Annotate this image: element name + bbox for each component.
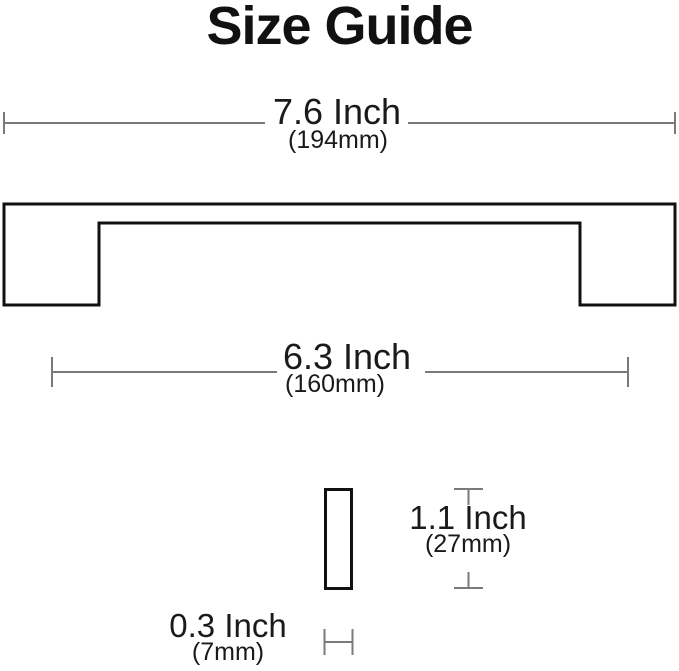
handle-front-outline (4, 204, 675, 305)
handle-side-profile (326, 490, 352, 589)
center-to-center-mm-label: (160mm) (285, 372, 385, 397)
overall-width-mm-label: (194mm) (288, 128, 388, 153)
thickness-dimension-marks (325, 629, 353, 655)
size-guide-diagram: Size Guide (0, 0, 679, 671)
overall-width-inch-label: 7.6 Inch (273, 94, 401, 130)
side-height-mm-label: (27mm) (425, 532, 511, 557)
side-thickness-mm-label: (7mm) (192, 640, 264, 665)
